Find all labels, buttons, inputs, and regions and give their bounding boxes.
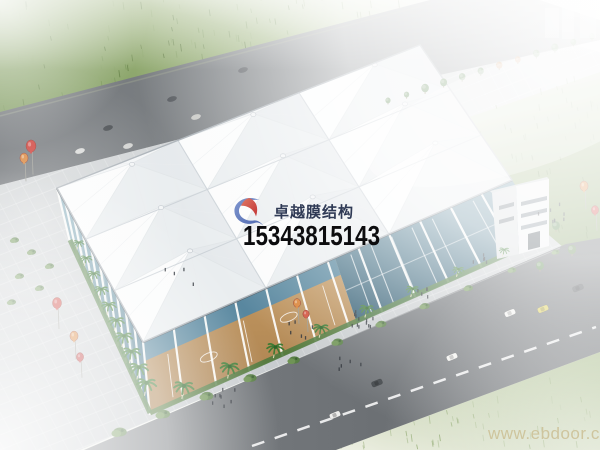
- phone-number-watermark: 15343815143: [243, 220, 380, 252]
- architectural-rendering-image: 卓越膜结构 15343815143 www.ebdoor.com: [0, 0, 600, 450]
- site-watermark: www.ebdoor.com: [488, 424, 600, 444]
